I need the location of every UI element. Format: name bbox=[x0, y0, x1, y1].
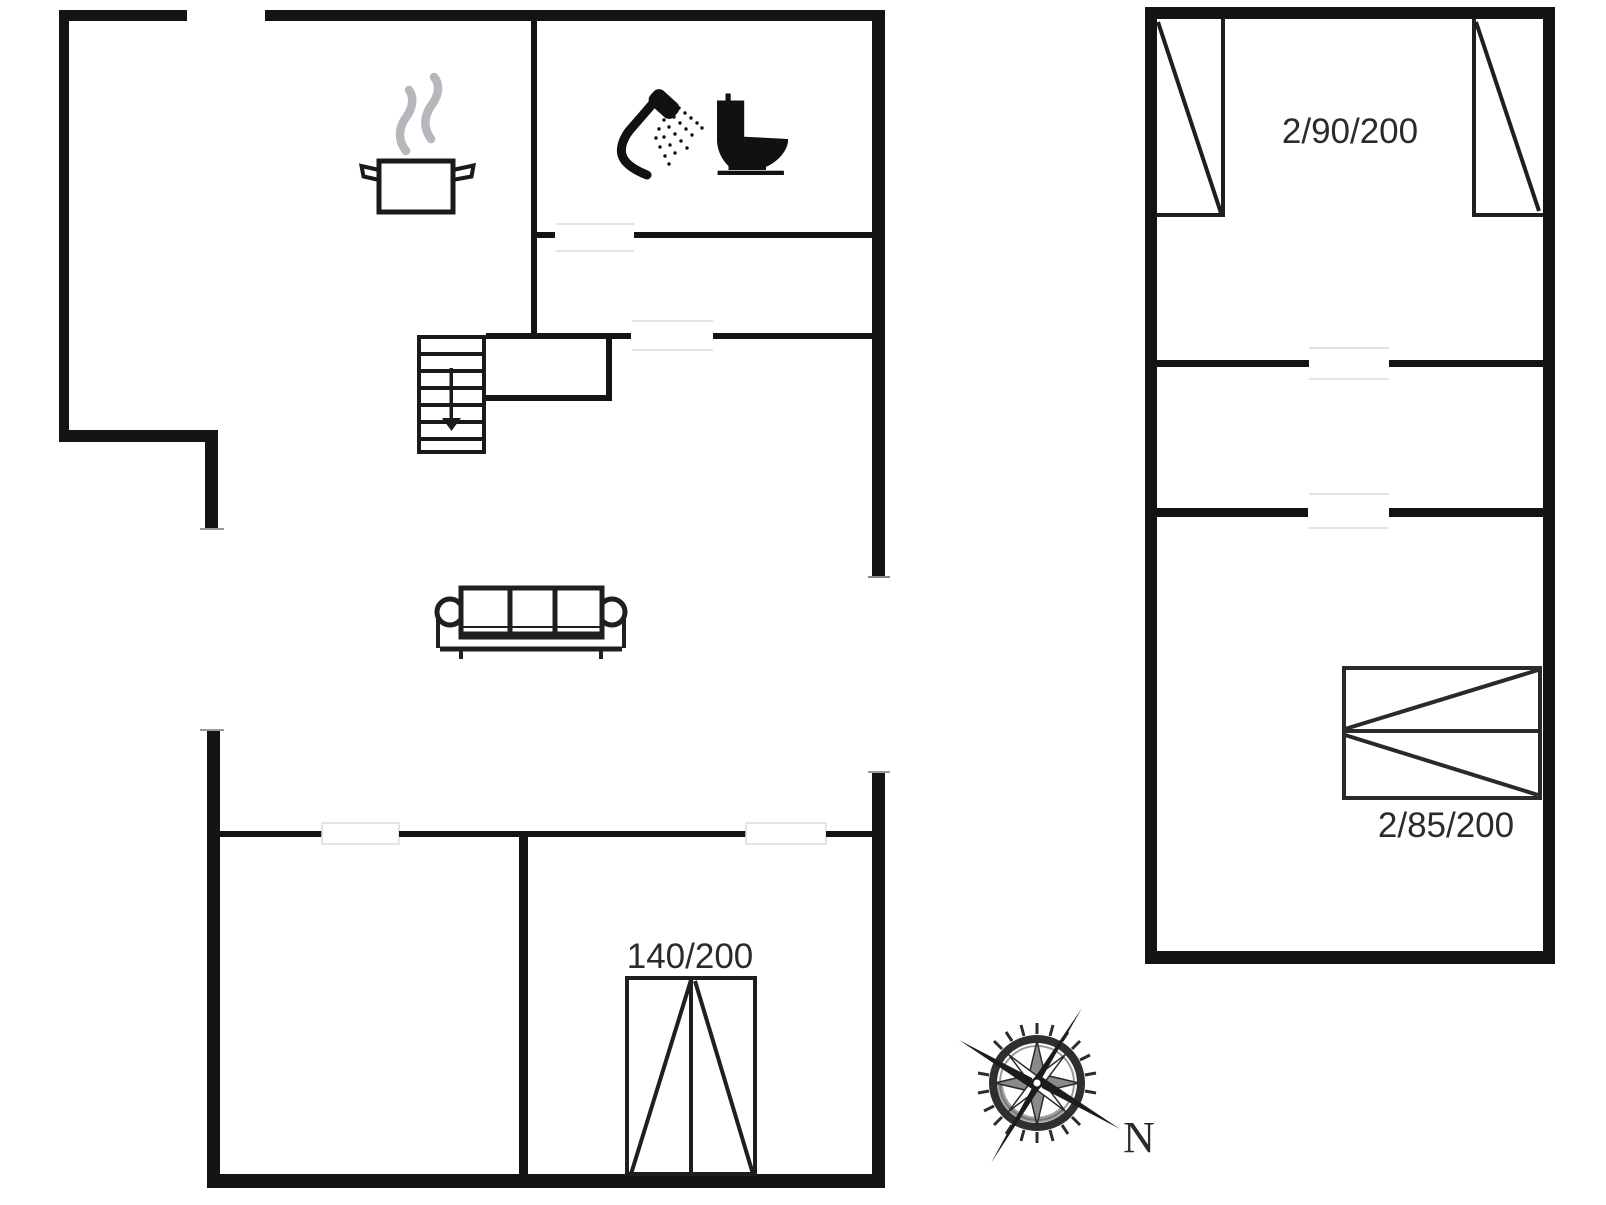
svg-text:N: N bbox=[1123, 1113, 1155, 1162]
svg-text:2/85/200: 2/85/200 bbox=[1378, 806, 1514, 845]
svg-text:2/90/200: 2/90/200 bbox=[1282, 112, 1418, 151]
svg-text:140/200: 140/200 bbox=[627, 937, 754, 976]
